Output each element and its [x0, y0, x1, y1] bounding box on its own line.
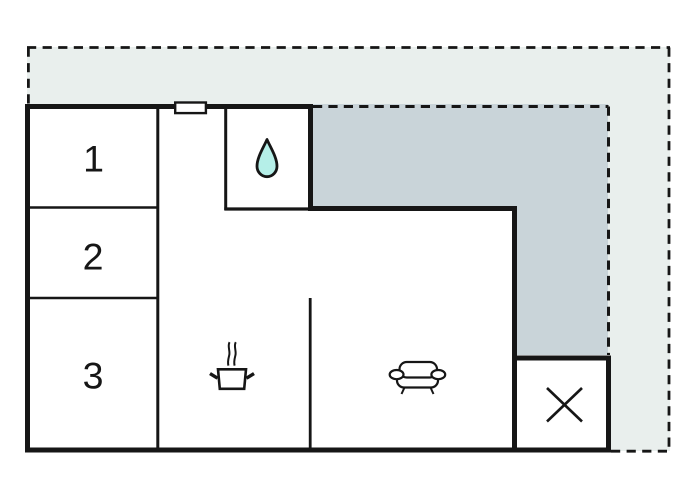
- svg-text:3: 3: [83, 354, 104, 396]
- svg-text:1: 1: [83, 137, 104, 179]
- svg-text:2: 2: [83, 236, 104, 278]
